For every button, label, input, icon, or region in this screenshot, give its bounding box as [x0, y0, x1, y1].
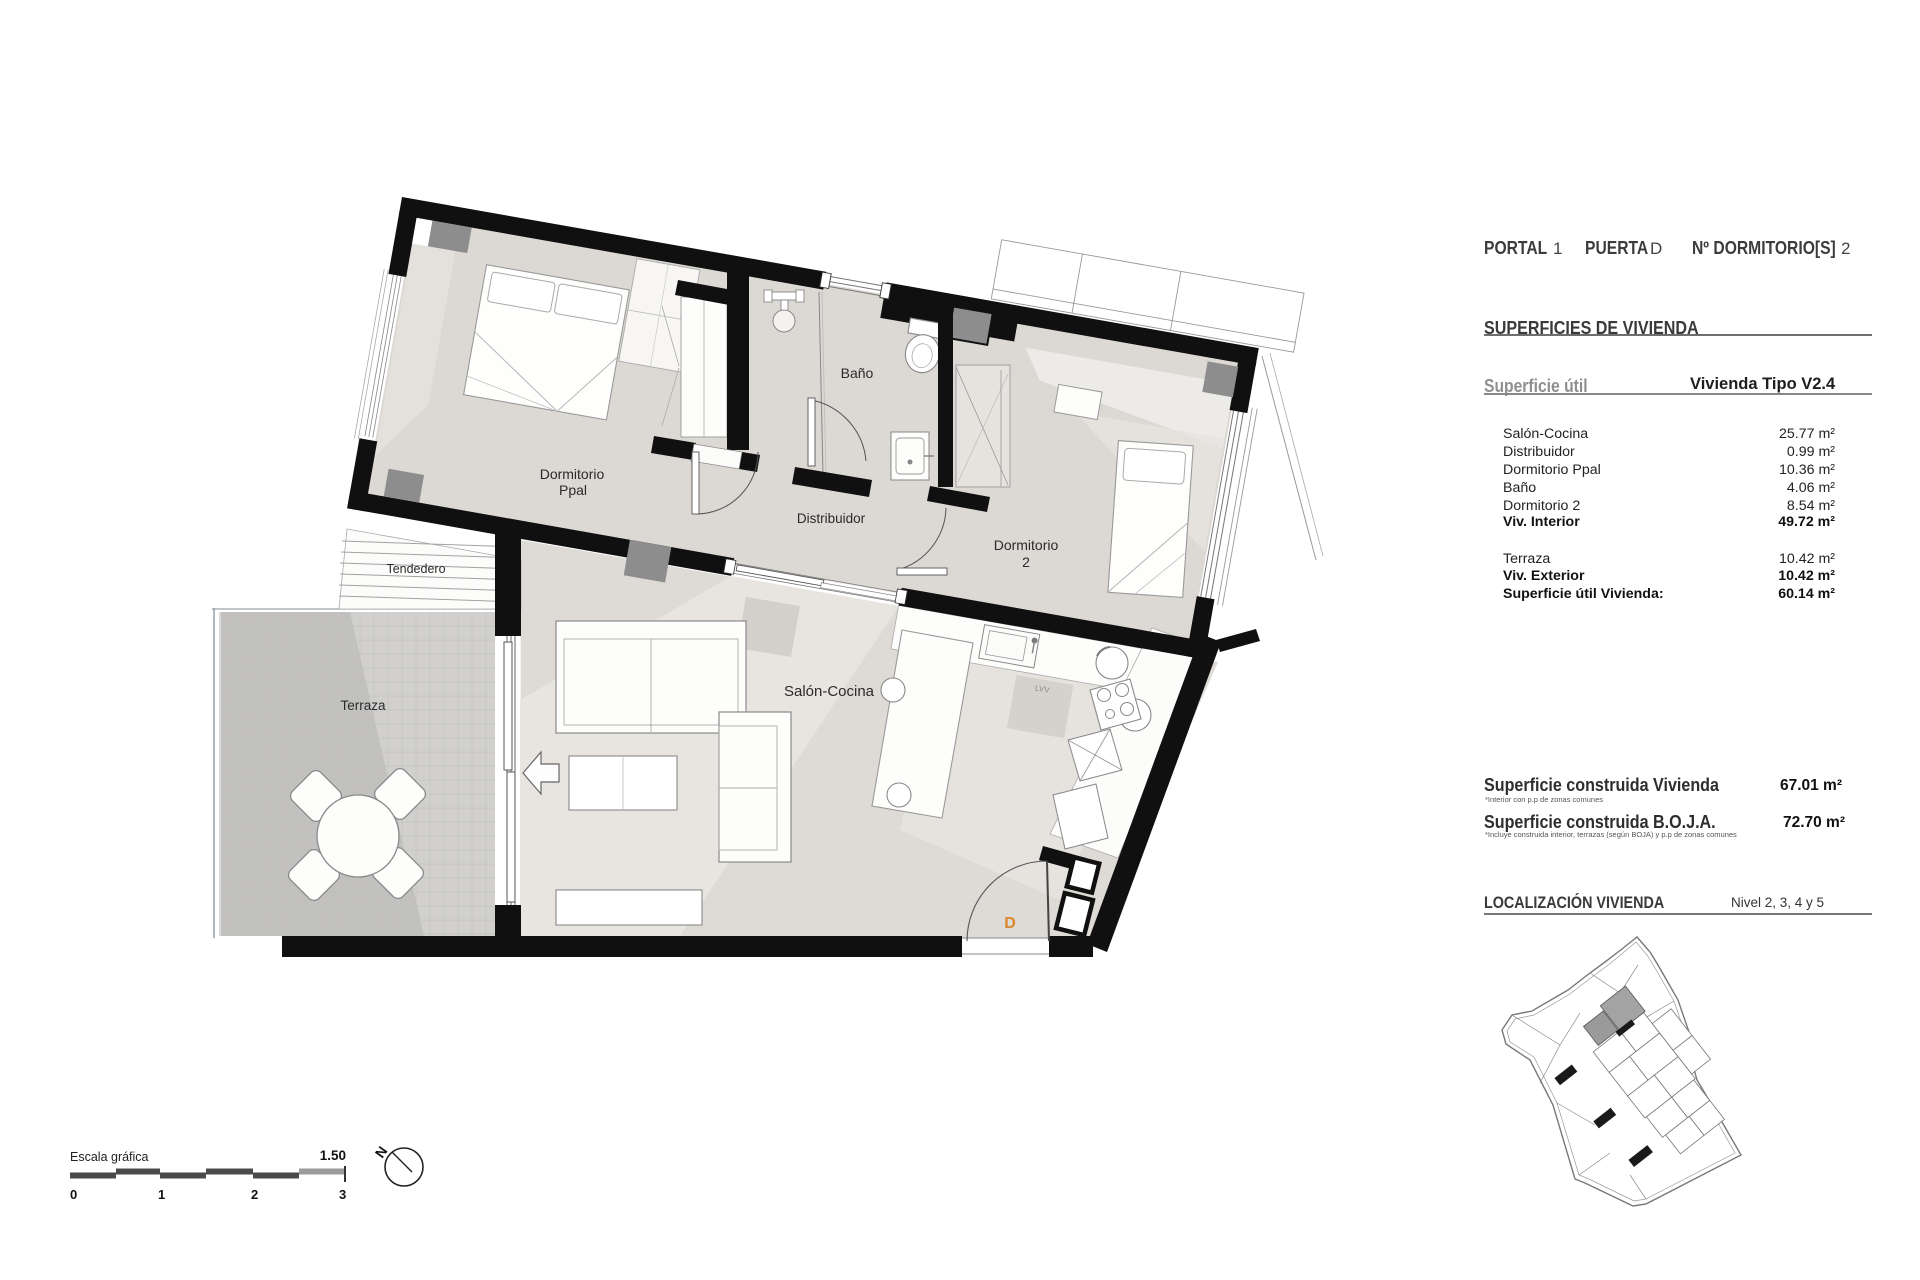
svg-text:D: D — [1004, 915, 1016, 932]
svg-text:Distribuidor: Distribuidor — [797, 511, 866, 526]
svg-text:1.50: 1.50 — [320, 1148, 346, 1163]
svg-text:Salón-Cocina: Salón-Cocina — [784, 683, 875, 700]
svg-text:0: 0 — [70, 1187, 77, 1202]
svg-text:2: 2 — [1022, 554, 1030, 570]
svg-text:2: 2 — [251, 1187, 258, 1202]
svg-text:1: 1 — [158, 1187, 165, 1202]
svg-text:Escala gráfica: Escala gráfica — [70, 1150, 149, 1164]
svg-text:Tendedero: Tendedero — [386, 562, 445, 576]
svg-text:Dormitorio: Dormitorio — [540, 466, 605, 482]
svg-text:Dormitorio: Dormitorio — [994, 537, 1059, 553]
svg-text:3: 3 — [339, 1187, 346, 1202]
svg-text:Baño: Baño — [841, 365, 874, 381]
svg-text:Terraza: Terraza — [340, 698, 386, 713]
svg-text:Ppal: Ppal — [559, 482, 587, 498]
